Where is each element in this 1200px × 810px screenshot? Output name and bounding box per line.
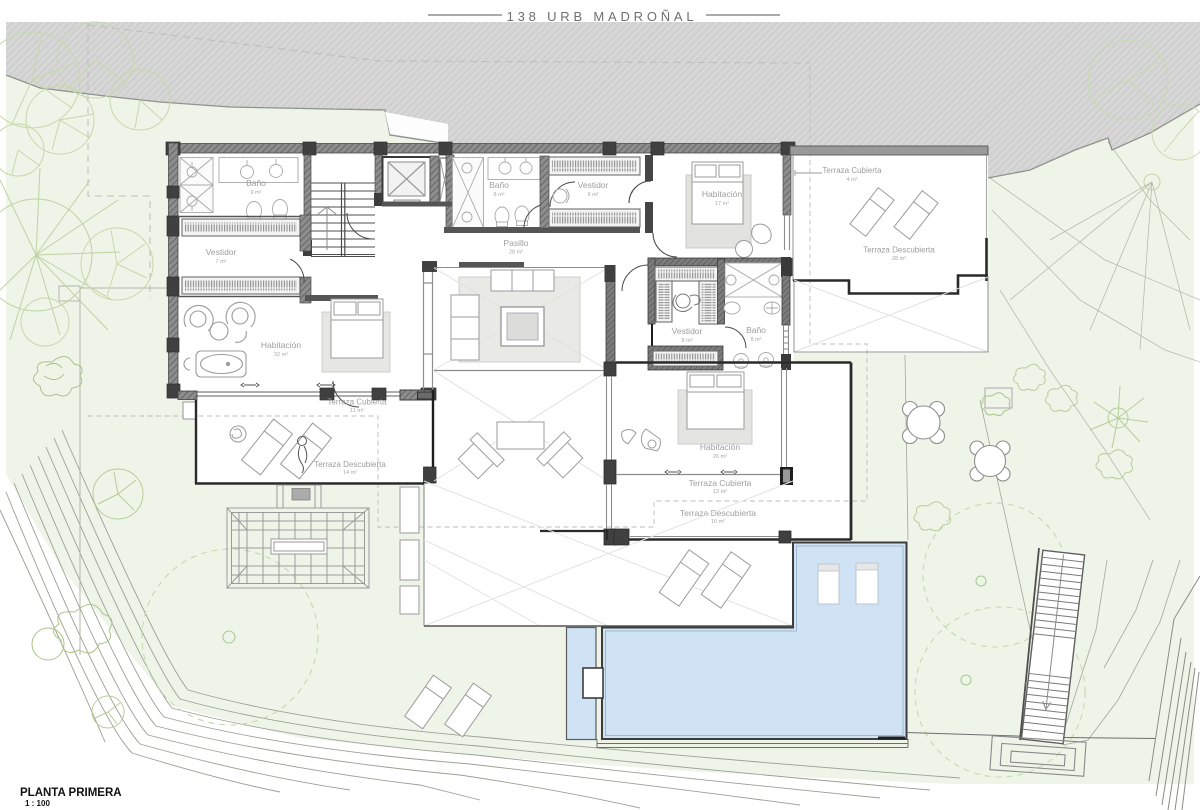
svg-text:28 m²: 28 m²	[509, 250, 523, 256]
svg-text:Terraza Descubierta: Terraza Descubierta	[863, 246, 935, 255]
svg-text:28 m²: 28 m²	[892, 256, 906, 262]
svg-text:8 m²: 8 m²	[682, 338, 693, 344]
svg-text:Terraza Descubierta: Terraza Descubierta	[314, 460, 386, 469]
svg-text:17 m²: 17 m²	[715, 201, 729, 207]
svg-text:Terraza Cubierta: Terraza Cubierta	[327, 398, 387, 407]
svg-text:Baño: Baño	[746, 325, 766, 335]
svg-text:9 m²: 9 m²	[251, 190, 262, 196]
svg-text:1 : 100: 1 : 100	[25, 799, 50, 808]
svg-text:4 m²: 4 m²	[847, 177, 858, 183]
svg-text:10 m²: 10 m²	[711, 519, 725, 525]
svg-text:Pasillo: Pasillo	[503, 238, 528, 248]
svg-text:13 m²: 13 m²	[713, 489, 727, 495]
svg-text:138 URB MADROÑAL: 138 URB MADROÑAL	[507, 9, 698, 24]
svg-text:Habitación: Habitación	[700, 442, 740, 452]
svg-text:PLANTA PRIMERA: PLANTA PRIMERA	[20, 787, 122, 799]
svg-text:Baño: Baño	[246, 178, 266, 188]
svg-text:7 m²: 7 m²	[216, 259, 227, 265]
svg-text:8 m²: 8 m²	[494, 192, 505, 198]
svg-text:Habitación: Habitación	[702, 189, 742, 199]
svg-text:Vestidor: Vestidor	[672, 326, 703, 336]
svg-text:14 m²: 14 m²	[343, 470, 357, 476]
svg-text:Vestidor: Vestidor	[206, 247, 237, 257]
svg-text:Terraza Descubierta: Terraza Descubierta	[680, 508, 756, 518]
svg-text:26 m²: 26 m²	[713, 454, 727, 460]
svg-text:Terraza Cubierta: Terraza Cubierta	[689, 478, 752, 488]
svg-text:8 m²: 8 m²	[751, 337, 762, 343]
svg-text:Habitación: Habitación	[261, 340, 301, 350]
svg-text:32 m²: 32 m²	[274, 352, 288, 358]
svg-text:9 m²: 9 m²	[588, 192, 599, 198]
svg-text:11 m²: 11 m²	[350, 408, 364, 414]
svg-text:Baño: Baño	[489, 180, 509, 190]
svg-text:Vestidor: Vestidor	[578, 180, 609, 190]
svg-text:Terraza Cubierta: Terraza Cubierta	[822, 166, 882, 175]
